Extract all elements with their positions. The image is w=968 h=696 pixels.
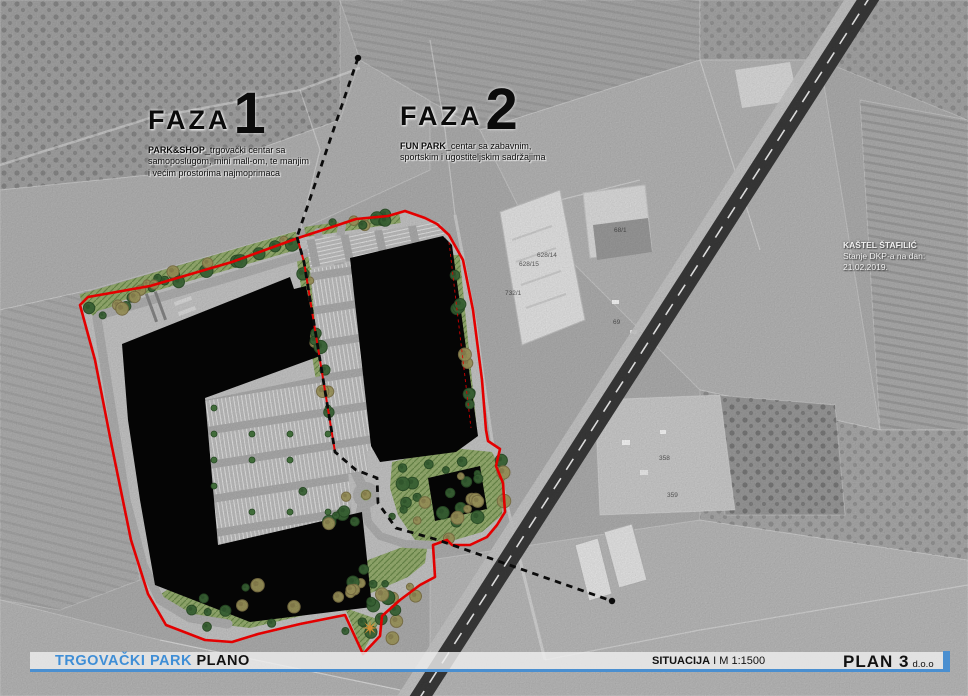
aerial-site-plan-map: 628/14628/1568/1732/169358359 bbox=[0, 0, 968, 696]
company-suffix: d.o.o bbox=[912, 659, 933, 670]
site-plan-page: 628/14628/1568/1732/169358359 FAZA 1 PAR… bbox=[0, 0, 968, 696]
drawing-scale: I M 1:1500 bbox=[713, 655, 765, 667]
company-stamp: PLAN 3d.o.o bbox=[843, 652, 934, 672]
drawing-title: SITUACIJA I M 1:1500 bbox=[652, 655, 765, 667]
title-bar: TRGOVAČKI PARK PLANO SITUACIJA I M 1:150… bbox=[0, 652, 968, 676]
project-title-main: TRGOVAČKI PARK bbox=[55, 653, 192, 669]
title-bar-underline bbox=[30, 669, 950, 672]
company-name: PLAN 3 bbox=[843, 652, 909, 671]
project-title: TRGOVAČKI PARK PLANO bbox=[55, 653, 250, 669]
project-title-location: PLANO bbox=[197, 653, 250, 669]
title-bar-right-accent bbox=[943, 651, 950, 672]
drawing-name: SITUACIJA bbox=[652, 655, 710, 667]
